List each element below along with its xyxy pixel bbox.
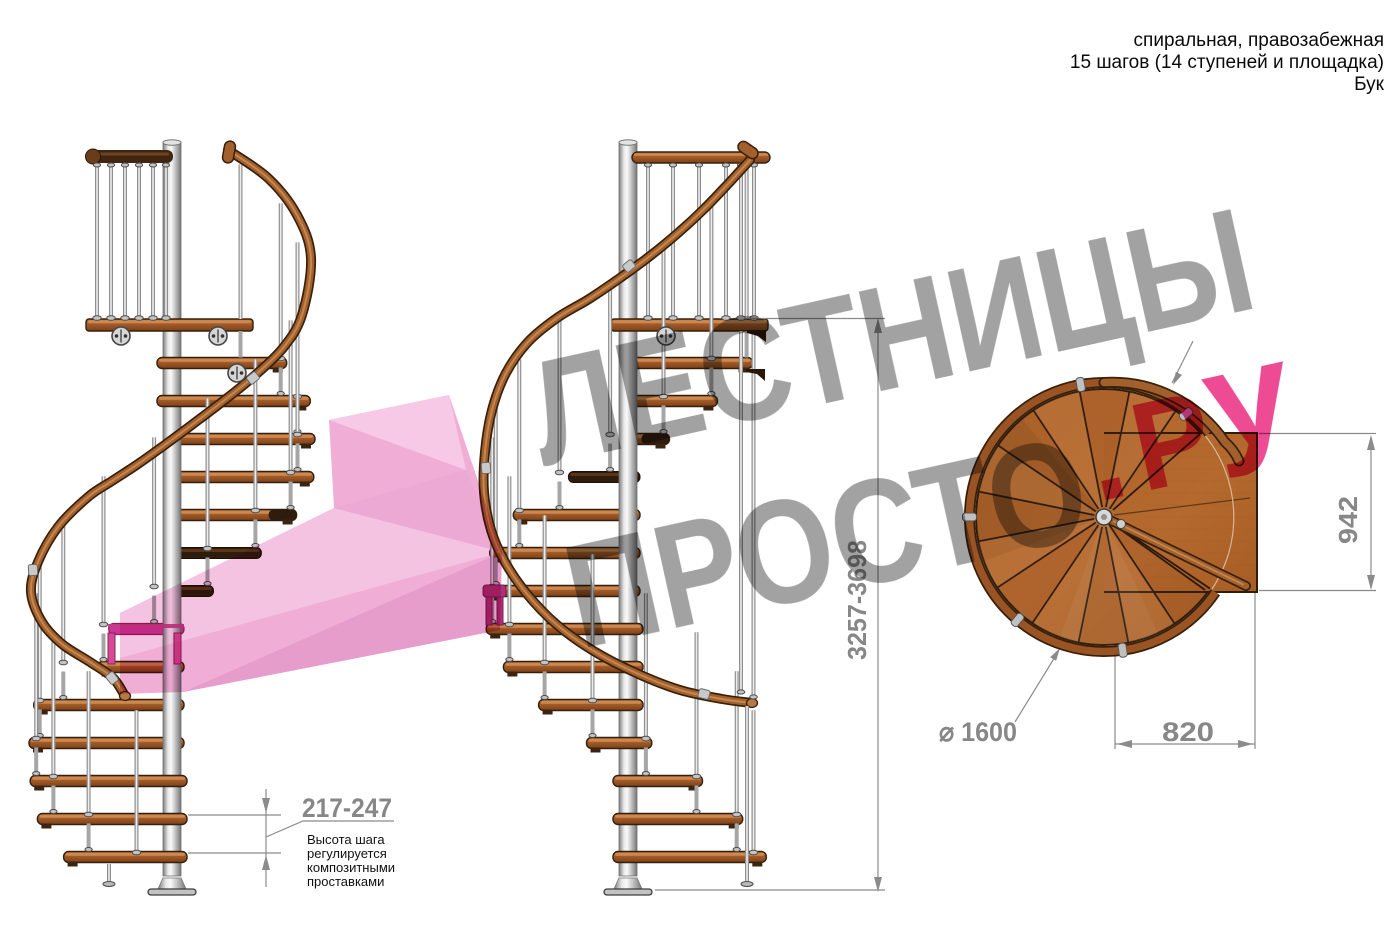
svg-text:Высота шагарегулируетсякомпози: Высота шагарегулируетсякомпозитнымипрост… — [307, 832, 395, 889]
svg-text:942: 942 — [1333, 496, 1363, 544]
svg-text:217-247: 217-247 — [302, 793, 392, 823]
svg-text:820: 820 — [1162, 717, 1214, 747]
svg-text:⌀ 1600: ⌀ 1600 — [939, 717, 1017, 747]
